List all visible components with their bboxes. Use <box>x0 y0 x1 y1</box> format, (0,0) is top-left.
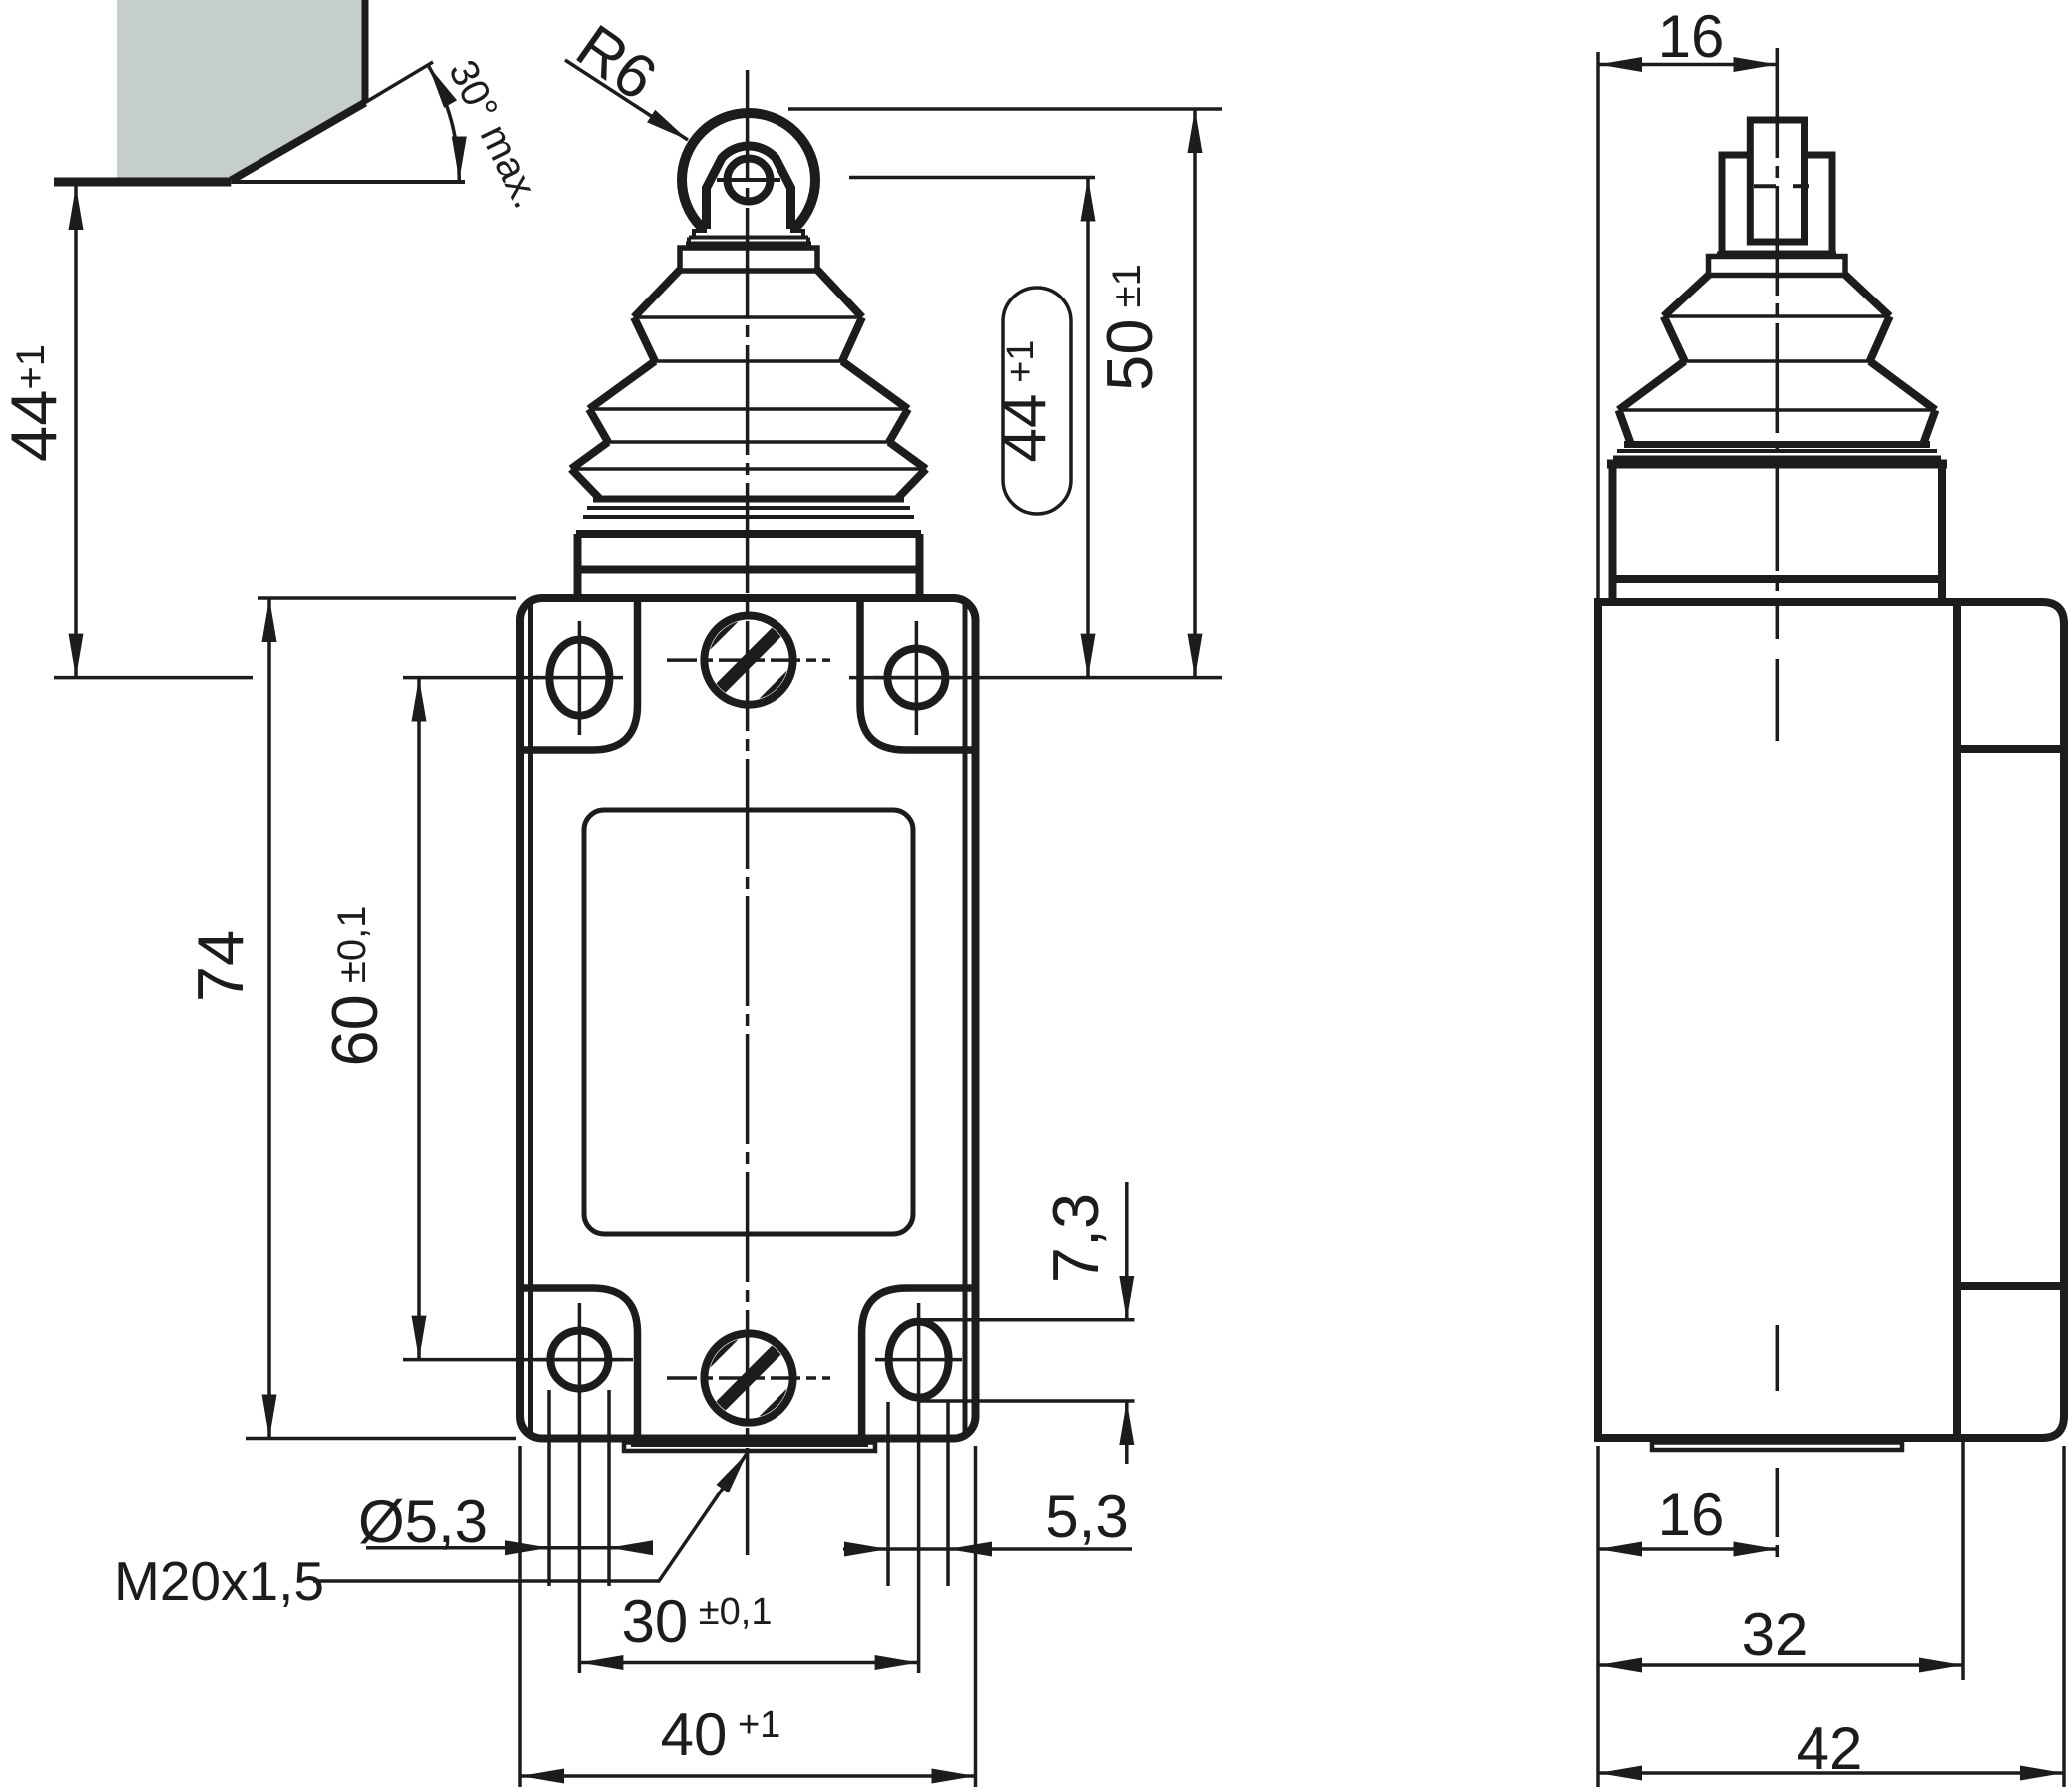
svg-text:16: 16 <box>1658 1482 1725 1548</box>
svg-text:M20x1,5: M20x1,5 <box>114 1550 324 1612</box>
svg-text:5,3: 5,3 <box>1045 1484 1128 1550</box>
svg-text:74: 74 <box>184 930 257 1002</box>
svg-text:32: 32 <box>1742 1601 1809 1668</box>
svg-text:42: 42 <box>1797 1715 1863 1782</box>
svg-text:7,3: 7,3 <box>1039 1193 1112 1283</box>
svg-text:16: 16 <box>1658 3 1725 70</box>
svg-text:Ø5,3: Ø5,3 <box>358 1489 488 1555</box>
